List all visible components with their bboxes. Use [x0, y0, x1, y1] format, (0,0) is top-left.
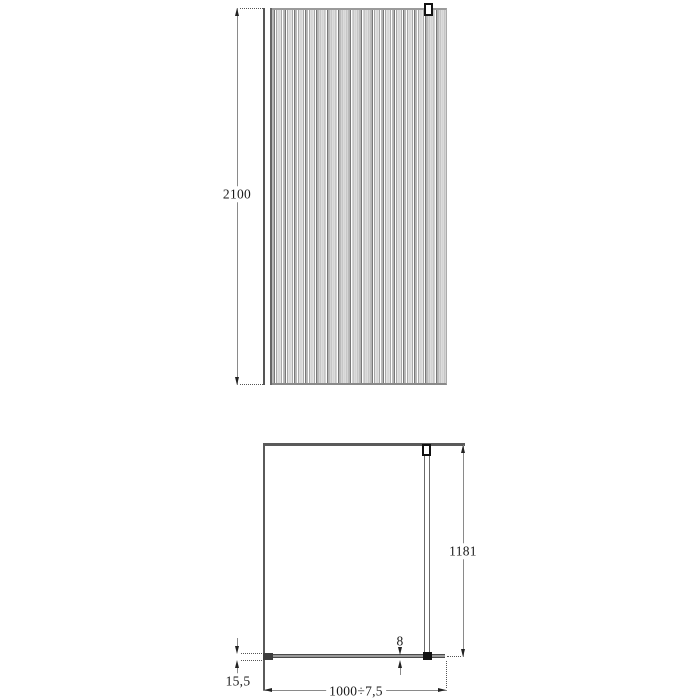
- support-bracket-plan: [422, 444, 431, 456]
- back-wall-line: [263, 443, 465, 446]
- arrow-left-icon: [264, 688, 272, 692]
- glass-thickness-label: 8: [394, 634, 405, 648]
- wall-profile-front: [263, 8, 272, 385]
- extension-line-width: [446, 661, 447, 688]
- arrow-down-icon: [398, 647, 402, 655]
- support-bracket-front: [424, 3, 433, 16]
- support-bar-foot: [423, 652, 432, 660]
- extension-line-profile-bottom: [241, 660, 262, 661]
- thickness-arrow-tail: [400, 668, 401, 675]
- arrow-up-icon: [398, 660, 402, 668]
- wall-profile-plan: [263, 653, 273, 660]
- depth-dimension-label: 1181: [446, 543, 480, 559]
- fluted-glass-panel-front: [263, 8, 447, 385]
- arrow-up-icon: [235, 660, 239, 668]
- extension-line-top: [240, 8, 263, 9]
- height-dimension-label: 2100: [220, 186, 254, 202]
- extension-line-bottom: [240, 384, 263, 385]
- wall-profile-dimension-label: 15,5: [223, 673, 254, 689]
- width-dimension-label: 1000÷7,5: [326, 683, 386, 699]
- extension-line-profile-top: [241, 653, 262, 654]
- extension-line-depth: [447, 656, 461, 657]
- arrow-down-icon: [461, 649, 465, 657]
- technical-drawing-canvas: 2100 1181 8 15,5: [0, 0, 700, 700]
- arrow-down-icon: [235, 377, 239, 385]
- arrow-up-icon: [235, 8, 239, 16]
- support-bar-plan: [424, 455, 430, 654]
- arrow-down-icon: [235, 646, 239, 654]
- arrow-right-icon: [438, 688, 446, 692]
- arrow-up-icon: [461, 445, 465, 453]
- glass-panel-plan: [263, 654, 445, 658]
